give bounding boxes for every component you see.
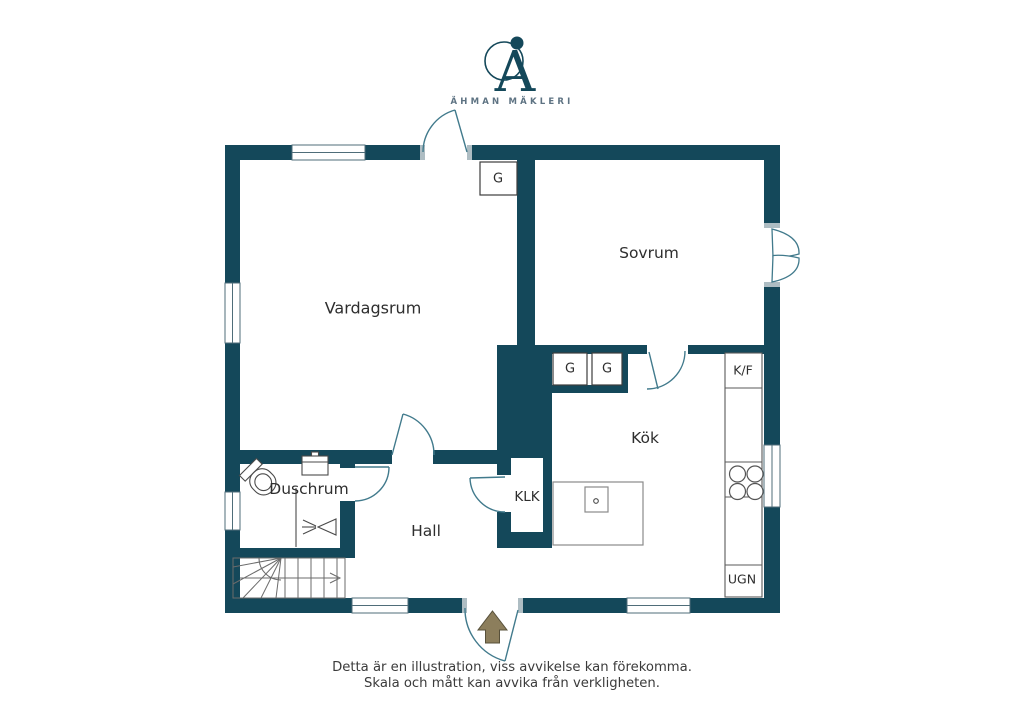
kitchen-counter [725, 353, 763, 597]
wall-divider-living-bedroom [517, 145, 535, 345]
room-label-sovrum: Sovrum [619, 244, 679, 262]
room-label-hall: Hall [411, 522, 441, 540]
floor-plan: A Vardagsrum Sovrum Kök Hall Duschrum KL… [0, 0, 1024, 724]
wall-shower-south [225, 548, 343, 558]
floor-plan-svg: A [0, 0, 1024, 724]
stairs [233, 558, 345, 598]
logo-monogram: A [494, 40, 536, 105]
wall-klk-east [543, 458, 552, 548]
wardrobe-label-kitchen-2: G [602, 362, 612, 377]
wall-right-upper [764, 145, 780, 228]
bathroom-sink [302, 452, 328, 475]
door-living-exterior [423, 110, 467, 152]
wall-bottom-left [225, 598, 467, 613]
disclaimer-line-1: Detta är en illustration, viss avvikelse… [332, 660, 692, 676]
wall-top-right [467, 145, 780, 160]
entry-arrow [478, 611, 507, 643]
french-doors-bedroom [772, 229, 799, 282]
disclaimer-line-2: Skala och mått kan avvika från verklighe… [332, 676, 692, 692]
wall-closet-cubby-bottom [545, 385, 628, 393]
window-bottom-kitchen [627, 598, 690, 613]
wardrobe-label-kitchen-1: G [565, 362, 575, 377]
stairs-direction-arrow [240, 573, 340, 583]
fridge-freezer-label: K/F [733, 363, 753, 378]
window-right-kitchen [764, 445, 780, 507]
door-bedroom-kitchen [647, 351, 685, 389]
walls [225, 145, 780, 613]
window-bottom-hall [352, 598, 408, 613]
chimney-mass [497, 345, 552, 458]
room-label-klk: KLK [514, 489, 539, 505]
wall-klk-west-top [497, 458, 511, 475]
room-label-vardagsrum: Vardagsrum [325, 299, 422, 318]
room-label-kok: Kök [631, 429, 659, 447]
window-top [292, 145, 365, 160]
window-left-living [225, 283, 240, 343]
wall-hall-north-b [433, 450, 497, 464]
wardrobe-label-living: G [493, 172, 503, 187]
wall-left [225, 145, 240, 613]
entry-arrow-shape [478, 611, 507, 643]
door-klk [470, 477, 505, 512]
disclaimer-note: Detta är en illustration, viss avvikelse… [332, 660, 692, 691]
island-sink [585, 487, 608, 512]
door-living-hall [392, 414, 434, 455]
room-label-duschrum: Duschrum [269, 480, 348, 498]
wall-bedroom-south-a [535, 345, 647, 354]
logo-mark: A [485, 37, 536, 106]
kitchen-island [553, 482, 643, 545]
wall-shower-east-top [340, 464, 355, 468]
window-left-shower [225, 492, 240, 530]
oven-label: UGN [728, 572, 756, 587]
brand-name: ÄHMAN MÄKLERI [451, 97, 574, 107]
door-shower-room [355, 467, 389, 501]
